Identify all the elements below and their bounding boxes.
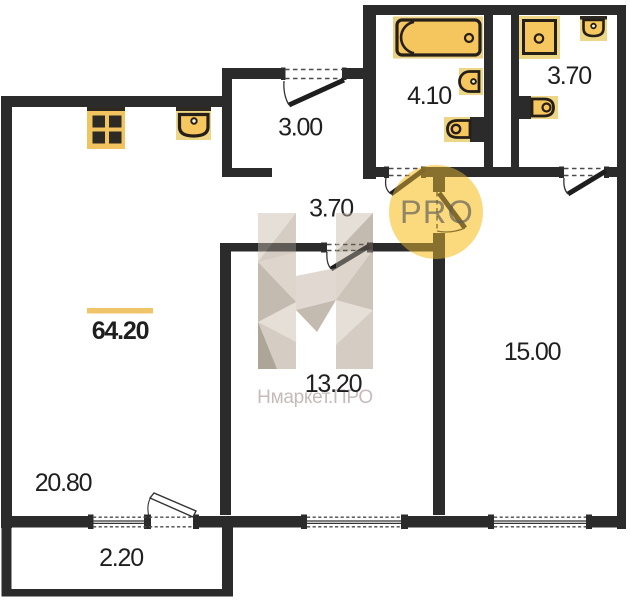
svg-text:3.70: 3.70 [547,62,591,90]
svg-text:3.00: 3.00 [278,114,322,142]
svg-text:13.20: 13.20 [305,370,362,398]
svg-text:20.80: 20.80 [35,469,92,497]
svg-text:15.00: 15.00 [504,338,561,366]
svg-text:2.20: 2.20 [99,544,143,572]
svg-text:PRO: PRO [400,194,474,230]
svg-text:4.10: 4.10 [407,82,451,110]
svg-text:64.20: 64.20 [92,317,149,345]
